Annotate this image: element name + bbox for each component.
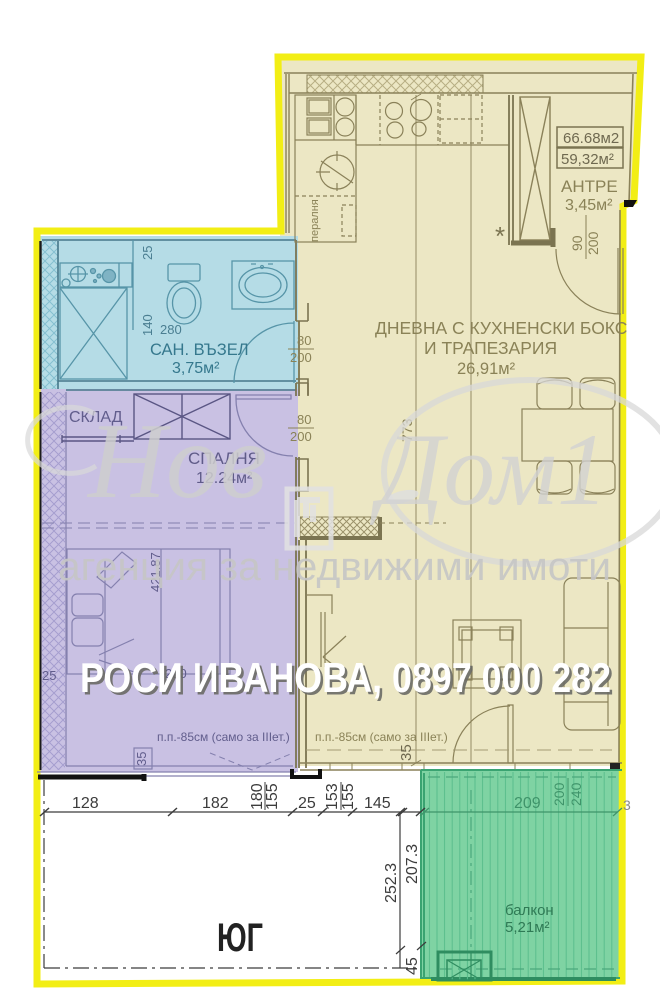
svg-text:Нов: Нов <box>86 402 267 521</box>
svg-text:59,32м²: 59,32м² <box>561 151 614 168</box>
svg-text:200: 200 <box>290 350 312 365</box>
svg-text:п.п.-85см (само за IIIет.): п.п.-85см (само за IIIет.) <box>157 730 290 744</box>
svg-text:ДНЕВНА С КУХНЕНСКИ БОКС: ДНЕВНА С КУХНЕНСКИ БОКС <box>375 318 627 338</box>
svg-text:балкон: балкон <box>505 902 554 919</box>
svg-text:90: 90 <box>569 235 585 251</box>
svg-text:280: 280 <box>160 322 182 337</box>
svg-text:45: 45 <box>404 957 421 975</box>
svg-text:200: 200 <box>585 231 601 255</box>
svg-text:80: 80 <box>297 333 311 348</box>
svg-text:200: 200 <box>551 782 567 806</box>
svg-text:155: 155 <box>340 783 357 810</box>
svg-text:128: 128 <box>72 795 99 812</box>
svg-text:3,45м²: 3,45м² <box>565 197 613 214</box>
svg-text:25: 25 <box>298 795 316 812</box>
svg-text:66.68м2: 66.68м2 <box>563 130 619 147</box>
svg-text:РОСИ ИВАНОВА, 0897 000 282: РОСИ ИВАНОВА, 0897 000 282 <box>80 654 611 701</box>
svg-text:240: 240 <box>568 782 584 806</box>
svg-text:И ТРАПЕЗАРИЯ: И ТРАПЕЗАРИЯ <box>424 338 557 358</box>
svg-text:3,75м²: 3,75м² <box>172 360 220 377</box>
svg-text:агенция за недвижими имоти: агенция за недвижими имоти <box>58 545 611 589</box>
svg-text:26,91м²: 26,91м² <box>457 360 516 378</box>
svg-text:252.3: 252.3 <box>383 863 400 903</box>
svg-text:140: 140 <box>140 314 155 336</box>
svg-text:п.п.-85см (само за IIIет.): п.п.-85см (само за IIIет.) <box>315 730 448 744</box>
svg-text:Дом1: Дом1 <box>369 413 608 527</box>
svg-text:35: 35 <box>134 752 149 766</box>
svg-text:25: 25 <box>42 668 56 683</box>
svg-text:155: 155 <box>264 783 281 810</box>
svg-text:207.3: 207.3 <box>404 844 421 884</box>
svg-text:*: * <box>495 221 505 251</box>
svg-text:153: 153 <box>324 783 341 810</box>
svg-text:САН. ВЪЗЕЛ: САН. ВЪЗЕЛ <box>150 341 249 359</box>
svg-text:ЮГ: ЮГ <box>217 916 263 960</box>
svg-text:80: 80 <box>297 412 311 427</box>
svg-text:145: 145 <box>364 795 391 812</box>
svg-text:АНТРЕ: АНТРЕ <box>561 177 618 196</box>
svg-text:35: 35 <box>398 744 415 761</box>
svg-text:5,21м²: 5,21м² <box>505 919 550 936</box>
svg-text:200: 200 <box>290 429 312 444</box>
svg-text:182: 182 <box>202 795 229 812</box>
svg-text:3: 3 <box>623 797 631 813</box>
svg-text:25: 25 <box>140 246 155 260</box>
svg-text:пералня: пералня <box>309 199 321 242</box>
svg-text:209: 209 <box>514 795 541 812</box>
